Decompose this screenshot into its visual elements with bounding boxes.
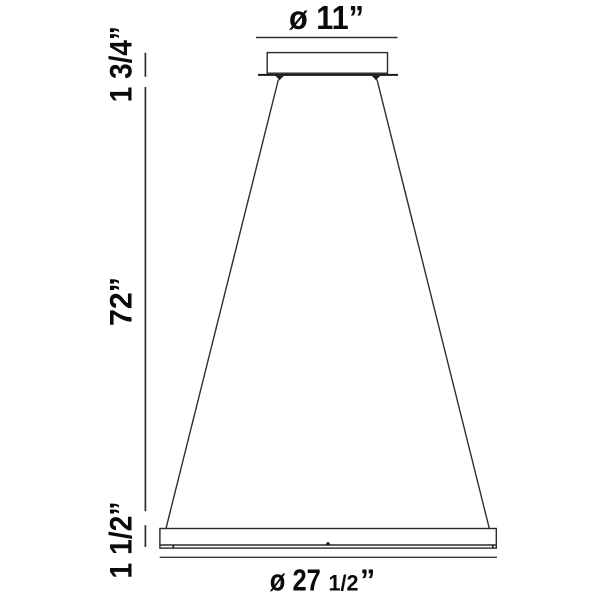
svg-text:1/2: 1/2 — [329, 571, 359, 596]
svg-text:ø 11”: ø 11” — [289, 0, 364, 36]
svg-text:72”: 72” — [103, 277, 139, 326]
svg-text:1 3/4”: 1 3/4” — [103, 26, 139, 102]
svg-text:”: ” — [360, 564, 375, 598]
svg-text:ø 27: ø 27 — [270, 564, 321, 598]
svg-text:1 1/2”: 1 1/2” — [103, 502, 139, 579]
